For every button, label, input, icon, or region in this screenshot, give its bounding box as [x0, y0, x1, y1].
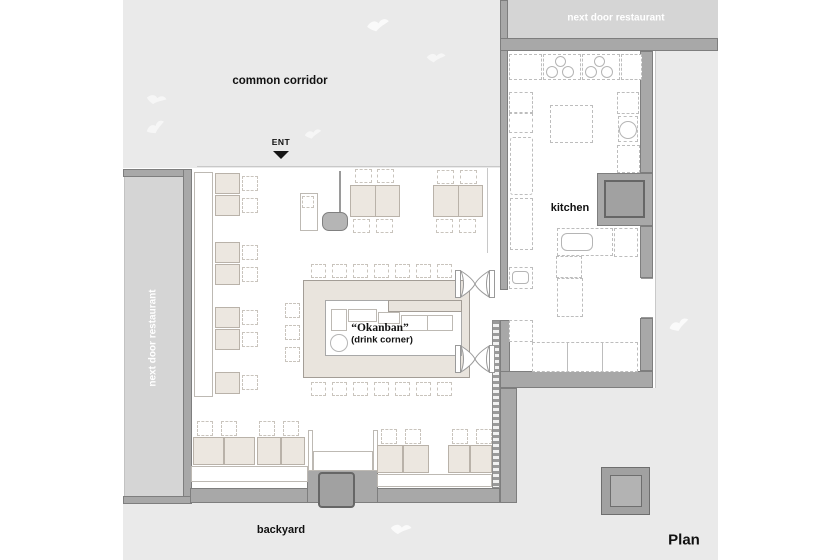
wall-kitchen-bottom — [500, 371, 653, 388]
okanban-sink — [330, 334, 348, 352]
kitchen-dishwasher-tray — [561, 233, 593, 251]
table — [215, 372, 240, 394]
table — [215, 242, 240, 263]
double-swing-door-icon — [455, 270, 495, 298]
stool — [285, 347, 300, 362]
stool — [353, 264, 368, 278]
table — [257, 437, 281, 465]
wall-left-block-right — [183, 169, 192, 503]
kitchen-label: kitchen — [551, 202, 590, 214]
next-door-restaurant-left-label: next door restaurant — [148, 289, 159, 386]
table — [215, 264, 240, 285]
bird-icon — [366, 16, 390, 33]
stool — [285, 303, 300, 318]
counter-divider — [602, 343, 603, 371]
stool — [437, 264, 452, 278]
podium-top — [302, 196, 314, 208]
chair — [381, 429, 397, 444]
stool — [374, 382, 389, 396]
chair — [197, 421, 213, 436]
burner — [555, 56, 566, 67]
stool — [311, 264, 326, 278]
common-corridor-label: common corridor — [232, 75, 327, 87]
backyard-door-column — [318, 472, 355, 508]
counter-divider — [567, 343, 568, 371]
host-stool — [322, 212, 348, 231]
burner — [546, 66, 558, 78]
stool — [332, 264, 347, 278]
chair — [221, 421, 237, 436]
table — [470, 445, 492, 473]
wall-main-vertical-lower — [500, 388, 517, 503]
double-swing-door-icon — [455, 345, 495, 373]
chair — [242, 375, 258, 390]
chair — [355, 169, 372, 183]
chair — [242, 245, 258, 260]
next-door-restaurant-top-label: next door restaurant — [567, 13, 664, 24]
chair — [353, 219, 370, 233]
chair — [376, 219, 393, 233]
chair — [460, 170, 477, 184]
wall-kitchen-right-2 — [640, 226, 653, 278]
chair — [437, 170, 454, 184]
bird-icon — [304, 127, 322, 140]
stool — [332, 382, 347, 396]
bottom-right-bench — [377, 474, 492, 487]
kitchen-counter — [509, 320, 533, 342]
table — [377, 445, 403, 473]
table — [215, 195, 240, 216]
table — [224, 437, 255, 465]
kitchen-shaft-column — [604, 180, 645, 218]
wall-dining-bottom-left — [190, 488, 308, 503]
freestanding-column-inner — [610, 475, 642, 507]
plan-title: Plan — [668, 532, 700, 549]
kitchen-counter — [614, 228, 638, 257]
wall-kitchen-right-3 — [640, 318, 653, 371]
burner — [585, 66, 597, 78]
chair — [242, 267, 258, 282]
table — [215, 173, 240, 194]
kitchen-counter — [509, 54, 542, 80]
chair — [436, 219, 453, 233]
burner — [594, 56, 605, 67]
backyard-label: backyard — [257, 524, 305, 536]
wall-left-block-bottom — [123, 496, 192, 504]
chair — [459, 219, 476, 233]
kitchen-counter — [510, 198, 533, 250]
kitchen-counter — [617, 92, 639, 114]
kitchen-prep-table — [557, 278, 583, 317]
wall-left-block-top — [123, 169, 192, 177]
bottom-left-bench — [191, 466, 308, 482]
chair — [283, 421, 299, 436]
kitchen-sink — [619, 121, 637, 139]
kitchen-counter — [621, 54, 642, 80]
kitchen-counter — [617, 145, 640, 173]
kitchen-side-door-opening — [641, 278, 653, 318]
okanban-back-shelf — [388, 300, 462, 312]
table-divider — [375, 186, 376, 216]
okanban-fixture-divider — [427, 316, 428, 330]
door-post — [308, 430, 313, 471]
stool — [395, 264, 410, 278]
chair — [452, 429, 468, 444]
okanban-fixture — [331, 309, 347, 331]
table — [215, 329, 240, 350]
chair — [259, 421, 275, 436]
table — [193, 437, 224, 465]
entrance-arrow-icon — [273, 151, 289, 159]
chair — [377, 169, 394, 183]
kitchen-counter — [510, 137, 533, 195]
kitchen-counter — [556, 256, 582, 278]
okanban-label: “Okanban” — [351, 322, 409, 334]
chair — [476, 429, 492, 444]
storefront-line — [197, 166, 500, 167]
table — [448, 445, 470, 473]
left-bench — [194, 172, 213, 397]
chair — [242, 198, 258, 213]
stool — [437, 382, 452, 396]
chair — [242, 310, 258, 325]
table — [281, 437, 305, 465]
burner — [562, 66, 574, 78]
stool — [311, 382, 326, 396]
kitchen-wash-basin — [512, 271, 529, 284]
stool — [374, 264, 389, 278]
burner — [601, 66, 613, 78]
kitchen-counter — [509, 113, 533, 133]
table — [403, 445, 429, 473]
entrance-label: ENT — [272, 137, 291, 147]
wall-dining-bottom-right — [377, 488, 500, 503]
sign-pole — [339, 171, 341, 212]
partition-line — [487, 168, 488, 253]
stool — [416, 264, 431, 278]
table-divider — [458, 186, 459, 216]
stool — [285, 325, 300, 340]
table — [215, 307, 240, 328]
chair — [242, 176, 258, 191]
okanban-sub-label: (drink corner) — [351, 335, 413, 346]
wall-kitchen-top — [500, 38, 718, 51]
kitchen-counter — [509, 92, 533, 113]
chair — [405, 429, 421, 444]
chair — [242, 332, 258, 347]
kitchen-counter-row — [532, 342, 638, 372]
okanban-fixture — [348, 309, 377, 322]
kitchen-island — [550, 105, 593, 143]
backyard-door-platform — [313, 451, 373, 471]
stool — [416, 382, 431, 396]
floor-plan: common corridor ENT next door restaurant… — [0, 0, 840, 560]
stool — [395, 382, 410, 396]
stool — [353, 382, 368, 396]
